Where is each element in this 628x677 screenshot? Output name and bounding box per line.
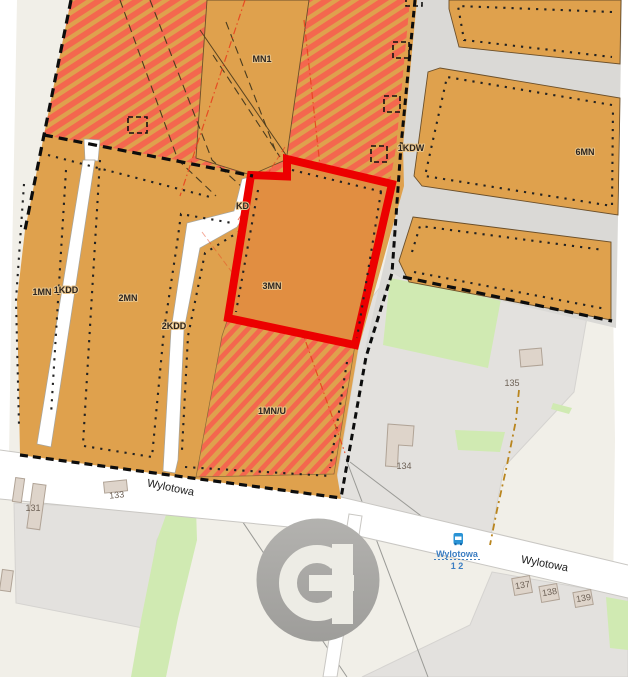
- svg-text:6MN: 6MN: [575, 147, 594, 157]
- svg-text:2MN: 2MN: [118, 293, 137, 303]
- svg-text:MN1: MN1: [252, 54, 271, 64]
- svg-text:135: 135: [504, 378, 519, 388]
- svg-text:133: 133: [109, 489, 125, 501]
- svg-text:1KDW: 1KDW: [398, 143, 425, 153]
- svg-text:3MN: 3MN: [262, 281, 281, 291]
- svg-text:2KDD: 2KDD: [162, 321, 187, 331]
- svg-text:131: 131: [25, 503, 40, 513]
- svg-text:1 2: 1 2: [451, 561, 464, 571]
- svg-text:KD: KD: [236, 201, 249, 211]
- svg-text:1MN/U: 1MN/U: [258, 406, 286, 416]
- svg-text:1MN: 1MN: [32, 287, 51, 297]
- svg-text:134: 134: [396, 461, 411, 471]
- svg-text:1KDD: 1KDD: [54, 285, 79, 295]
- svg-text:Wylotowa: Wylotowa: [436, 549, 479, 559]
